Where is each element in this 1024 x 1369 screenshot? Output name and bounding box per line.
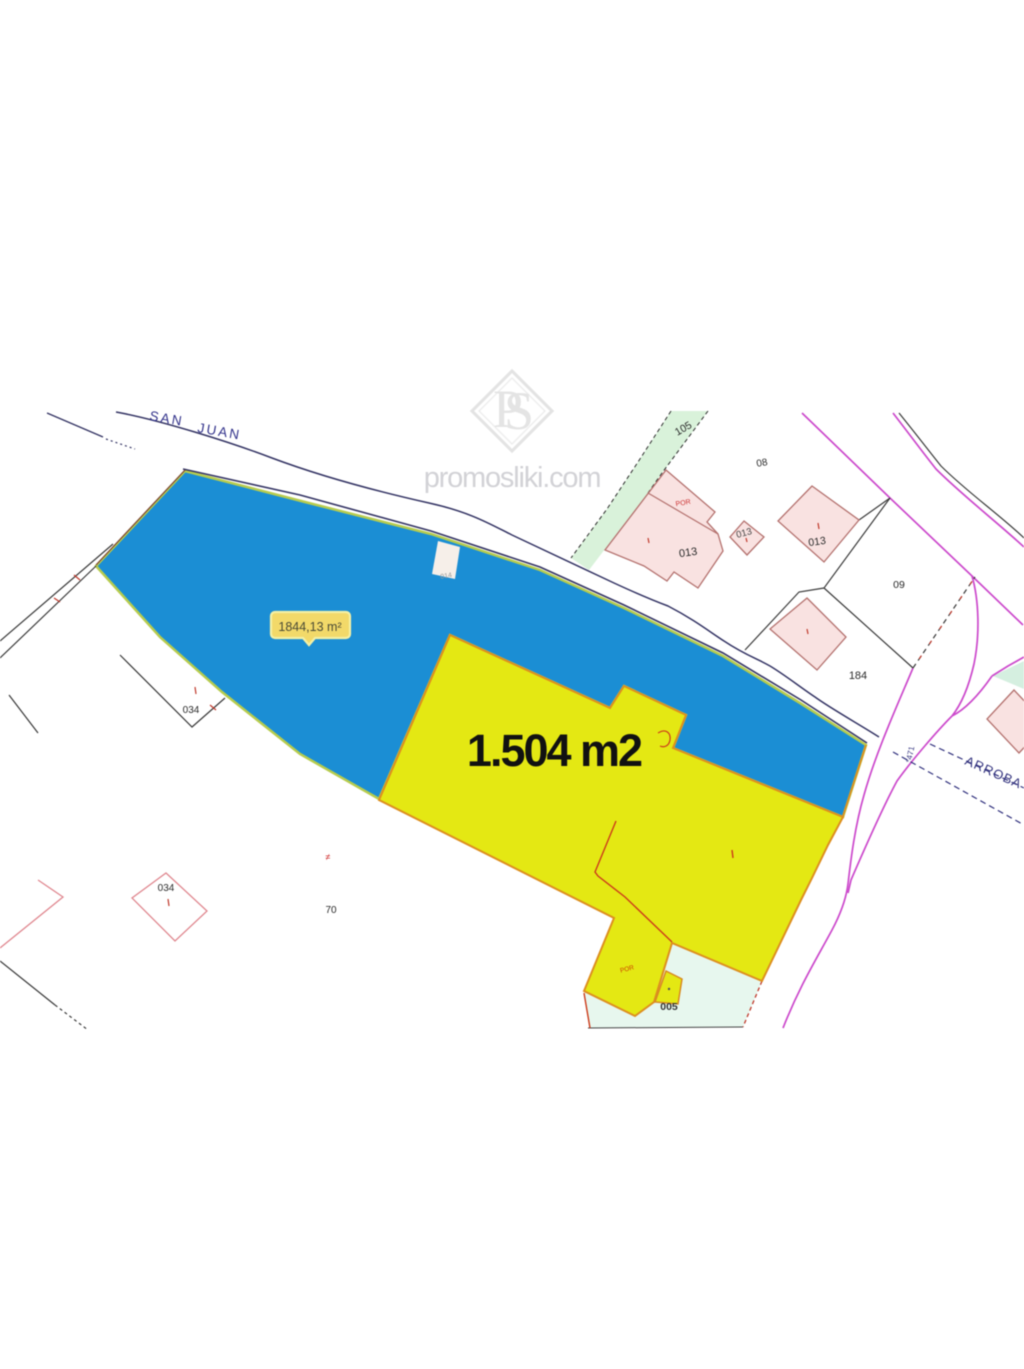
svg-text:promosliki.com: promosliki.com — [424, 462, 601, 494]
svg-text:1844,13 m²: 1844,13 m² — [278, 620, 341, 634]
svg-text:S: S — [504, 381, 534, 441]
svg-text:005: 005 — [660, 1001, 678, 1013]
svg-text:184: 184 — [849, 670, 867, 682]
svg-text:09: 09 — [893, 579, 905, 591]
svg-text:70: 70 — [325, 905, 337, 916]
svg-text:013: 013 — [808, 535, 827, 549]
svg-text:034: 034 — [158, 883, 175, 894]
svg-text:034: 034 — [183, 705, 200, 716]
svg-text:1.504 m2: 1.504 m2 — [467, 725, 642, 776]
svg-text:≠: ≠ — [326, 852, 331, 862]
svg-text:013: 013 — [678, 546, 698, 560]
